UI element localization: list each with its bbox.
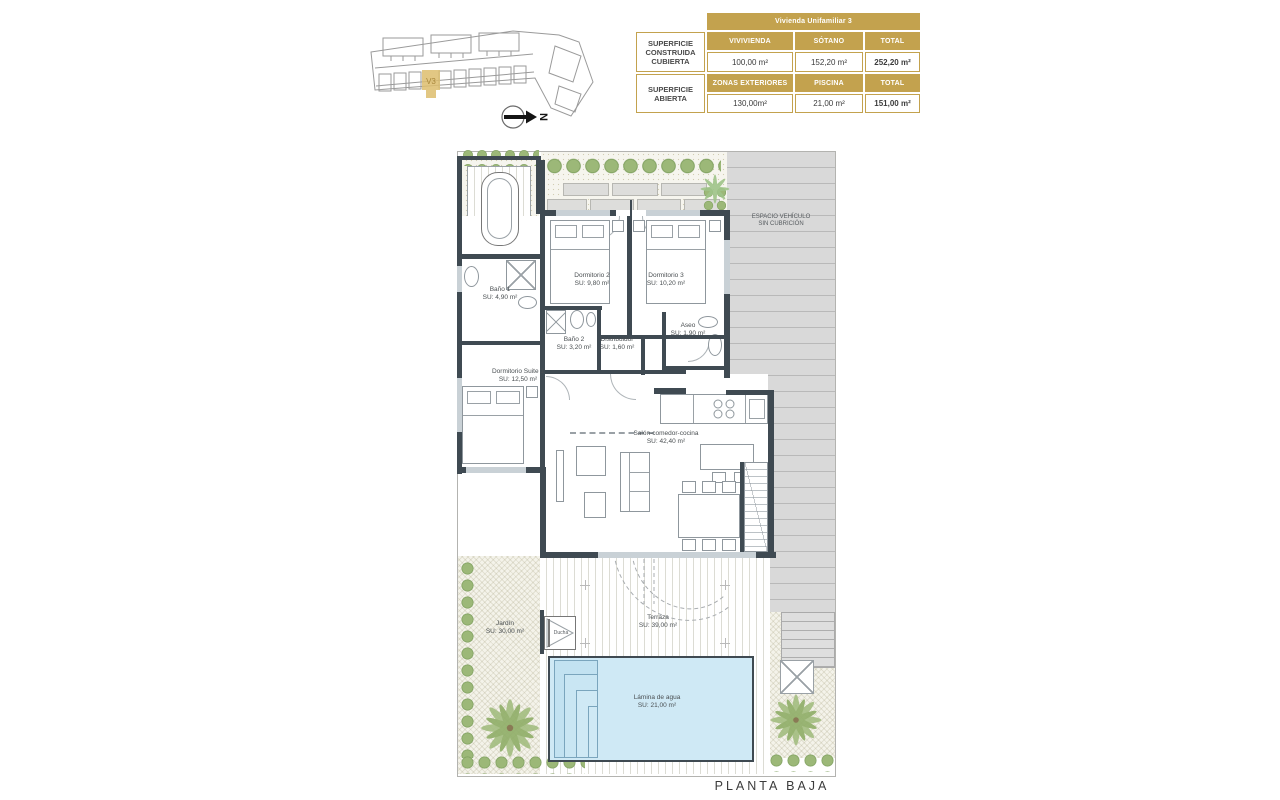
chair-symbol [702,481,716,493]
light-marker-icon [580,580,590,590]
shower-symbol [546,310,566,334]
nightstand-symbol [526,386,538,398]
table-value: 152,20 m² [795,52,863,72]
site-plan-unit-label: V3 [426,77,436,86]
window [457,378,462,432]
window [466,467,526,473]
cooktop-symbol [711,398,737,420]
room-label-salon: Salón-comedor-cocinaSU: 42,40 m² [614,430,718,446]
col-header: TOTAL [865,32,920,50]
site-plan: V3 [363,14,601,128]
window [646,210,700,216]
room-label-banyo1: Baño 1SU: 4,90 m² [466,286,534,302]
table-total: 252,20 m² [865,52,920,72]
surface-area-table: Vivienda Unifamiliar 3 SUPERFICIE CONSTR… [636,13,920,113]
kitchen-counter [660,394,768,424]
stairs-symbol [744,462,768,552]
hedge-left-column [459,560,477,758]
vehicle-space-label: ESPACIO VEHÍCULO SIN CUBRICIÓN [733,214,829,228]
col-header: TOTAL [865,74,920,92]
site-plan-highlight: V3 [422,70,440,98]
window [724,240,730,294]
north-arrow-icon: N [498,102,554,132]
chair-symbol [722,481,736,493]
room-label-lamina-de-agua: Lámina de aguaSU: 21,00 m² [612,694,702,710]
shower-label: Ducha [549,630,573,637]
window [556,210,610,216]
table-total: 151,00 m² [865,94,920,113]
room-label-jardin: JardínSU: 30,00 m² [474,620,536,636]
table-title: Vivienda Unifamiliar 3 [707,13,920,30]
bed-symbol [550,220,610,304]
coffee-table-symbol [584,492,606,518]
col-header: SÓTANO [795,32,863,50]
front-garden-bushes [545,155,721,179]
pergola-symbol [780,660,814,694]
palm-tree-icon [768,692,824,748]
light-marker-icon [720,638,730,648]
room-label-suite1: Dormitorio Suite 1SU: 12,50 m² [476,368,560,384]
chair-symbol [702,539,716,551]
chair-symbol [682,481,696,493]
light-marker-icon [720,580,730,590]
toilet-symbol [464,266,479,287]
room-label-dormitorio2: Dormitorio 2SU: 9,80 m² [556,272,628,288]
sliding-glass-door [598,552,756,558]
armchair-symbol [576,446,606,476]
bathtub-symbol [481,172,519,246]
room-label-dormitorio3: Dormitorio 3SU: 10,20 m² [630,272,702,288]
row-label-built: SUPERFICIE CONSTRUIDA CUBIERTA [636,32,705,72]
outdoor-shower: Ducha [544,616,576,650]
svg-text:N: N [537,113,549,121]
table-value: 21,00 m² [795,94,863,113]
row-label-open: SUPERFICIE ABIERTA [636,74,705,113]
nightstand-symbol [709,220,721,232]
window [457,266,462,292]
room-label-terraza: TerrazaSU: 39,00 m² [620,614,696,630]
nightstand-symbol [633,220,645,232]
col-header: ZONAS EXTERIORES [707,74,793,92]
fern-icon [698,172,732,206]
col-header: PISCINA [795,74,863,92]
table-value: 130,00m² [707,94,793,113]
room-label-aseo: AseoSU: 1,90 m² [666,322,710,338]
sink-symbol [586,312,596,327]
floor-name-label: PLANTA BAJA [692,779,852,793]
sofa-symbol [620,452,650,512]
bed-symbol [462,386,524,464]
col-header: VIVIVIENDA [707,32,793,50]
tv-unit-symbol [556,450,564,502]
kitchen-sink-symbol [749,399,765,419]
palm-tree-icon [478,696,542,760]
table-value: 100,00 m² [707,52,793,72]
dining-table [678,494,740,538]
bed-symbol [646,220,706,304]
room-label-distribuidor: DistribuidorSU: 1,60 m² [592,336,642,352]
light-marker-icon [580,638,590,648]
chair-symbol [682,539,696,551]
toilet-symbol [570,310,584,329]
hedge-bottom-right [768,752,835,772]
floor-plan-sheet: V3 N Vivienda Unifamiliar 3 SUPERFICIE C… [0,0,1280,800]
chair-symbol [722,539,736,551]
nightstand-symbol [612,220,624,232]
